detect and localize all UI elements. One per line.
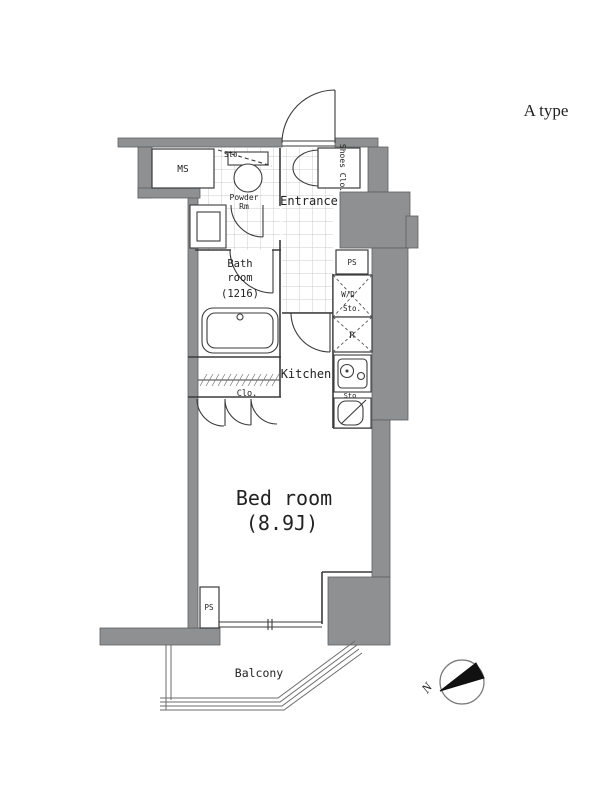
wall-column-bump <box>406 216 418 248</box>
wall-bottom <box>100 628 220 645</box>
wall-left <box>188 196 198 628</box>
balcony-rail-left <box>166 645 171 710</box>
label-bath-1: Bath <box>227 258 252 270</box>
closet-door-arcs <box>197 399 277 426</box>
compass-needle-icon <box>440 663 484 691</box>
label-meter-space: MS <box>177 164 189 175</box>
floor-plan-svg: N MS Sto. Powder Rm Entrance Shoes Clo. … <box>0 0 600 800</box>
label-entrance: Entrance <box>280 194 338 208</box>
wall-ms-bottom <box>138 188 200 198</box>
sink-icon <box>338 401 363 425</box>
entrance-threshold <box>282 141 335 146</box>
compass-north-label: N <box>417 679 436 697</box>
wall-right-lower <box>372 420 390 577</box>
label-kitchen: Kitchen <box>281 367 332 381</box>
wall-right-upper <box>368 147 388 192</box>
label-sink-storage: Sto <box>344 392 357 400</box>
label-closet: Clo. <box>237 389 257 399</box>
entrance-door-arc <box>282 90 335 143</box>
label-fridge: R <box>349 331 355 341</box>
label-powder-room-2: Rm <box>239 202 249 211</box>
label-bedroom-size: (8.9J) <box>246 511 318 535</box>
label-bedroom-name: Bed room <box>236 486 332 510</box>
label-bath-size: (1216) <box>221 288 259 300</box>
label-shoes-closet: Shoes Clo. <box>338 144 347 192</box>
label-balcony: Balcony <box>235 666 284 680</box>
wall-corner-block <box>328 577 390 645</box>
bath-fixtures <box>202 308 278 353</box>
floor-plan-page: N MS Sto. Powder Rm Entrance Shoes Clo. … <box>0 0 600 800</box>
toilet-bowl-icon <box>234 164 262 192</box>
stove-burner-right-icon <box>358 373 365 380</box>
wall-column <box>340 192 410 248</box>
label-powder-room-1: Powder <box>230 193 259 202</box>
closet-rod <box>198 374 280 386</box>
label-pipe-space-upper: PS <box>347 258 357 267</box>
label-washer-dryer-1: W/D <box>341 290 355 299</box>
label-pipe-space-lower: PS <box>204 603 214 612</box>
label-bath-2: room <box>227 272 252 284</box>
wall-right-mid <box>372 248 408 420</box>
vanity-basin-icon <box>197 212 220 241</box>
label-washer-dryer-2: Sto. <box>343 304 361 313</box>
label-storage-top: Sto. <box>224 150 242 159</box>
bathtub-drain-icon <box>237 314 243 320</box>
kitchen-door-arc <box>291 313 330 352</box>
stove-burner-dot-icon <box>346 370 349 373</box>
wall-top-left <box>118 138 282 147</box>
compass-icon: N <box>417 660 484 704</box>
balcony-window <box>219 619 322 630</box>
plan-type-title: A type <box>524 101 569 120</box>
